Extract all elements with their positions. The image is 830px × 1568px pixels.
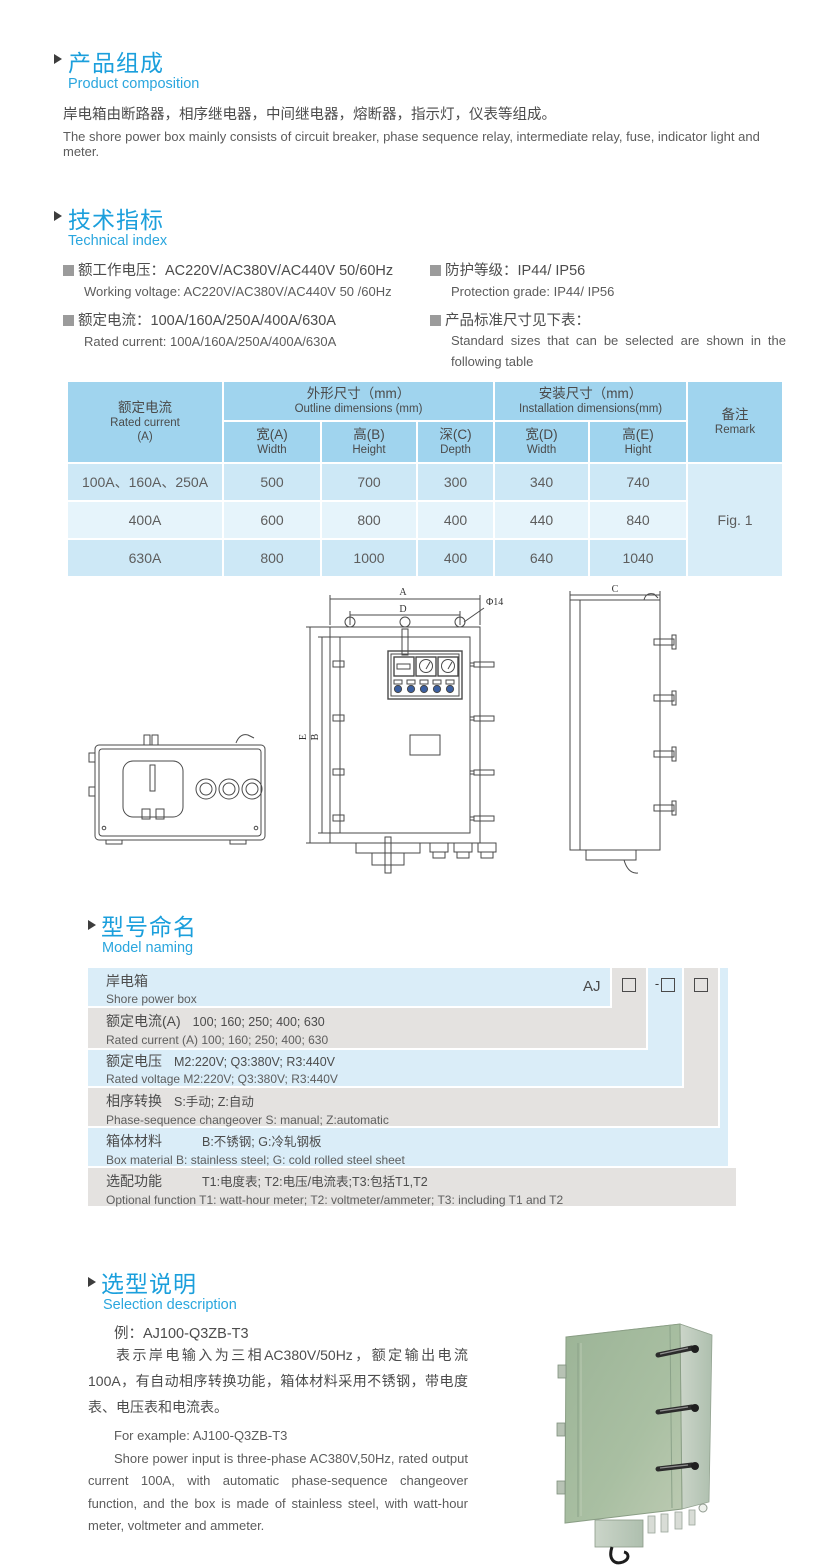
section-bullet-icon xyxy=(54,211,62,221)
side-view: C xyxy=(570,585,676,873)
naming-row-shore-power-box: 岸电箱 Shore power box AJ xyxy=(88,968,610,1006)
table-cell: 800 xyxy=(322,502,416,538)
table-cell: 400 xyxy=(418,540,493,576)
example-model-cn: 例：AJ100-Q3ZB-T3 xyxy=(114,1322,249,1343)
code-strip-voltage: - xyxy=(648,968,682,1086)
spec-rated-current-cn: 额定电流：100A/160A/250A/400A/630A xyxy=(63,309,336,330)
section-subtitle-model-naming: Model naming xyxy=(102,940,193,956)
square-bullet-icon xyxy=(63,265,74,276)
square-bullet-icon xyxy=(63,315,74,326)
code-box-icon xyxy=(694,978,708,992)
table-cell: 630A xyxy=(68,540,222,576)
table-cell: 100A、160A、250A xyxy=(68,464,222,500)
table-row: 630A 800 1000 400 640 1040 xyxy=(68,540,782,576)
section-title-product-composition: 产品组成 xyxy=(68,44,164,78)
table-cell: 840 xyxy=(590,502,686,538)
dim-b-label: B xyxy=(310,733,321,740)
naming-row-rated-voltage: 额定电压M2:220V; Q3:380V; R3:440V Rated volt… xyxy=(88,1050,682,1086)
latch-icons xyxy=(470,662,494,821)
spec-protection-grade-en: Protection grade: IP44/ IP56 xyxy=(430,284,614,299)
code-strip-current xyxy=(612,968,646,1048)
catalog-page: 产品组成 Product composition 岸电箱由断路器，相序继电器，中… xyxy=(0,0,830,1568)
section-bullet-icon xyxy=(88,1277,96,1287)
remark-cell: Fig. 1 xyxy=(688,464,782,576)
table-cell: 640 xyxy=(495,540,588,576)
table-cell: 800 xyxy=(224,540,320,576)
naming-row-rated-current: 额定电流(A)100; 160; 250; 400; 630 Rated cur… xyxy=(88,1008,646,1048)
section-title-technical-index: 技术指标 xyxy=(68,201,164,235)
naming-row-phase-sequence: 相序转换S:手动; Z:自动 Phase-sequence changeover… xyxy=(88,1088,718,1126)
square-bullet-icon xyxy=(430,265,441,276)
table-cell: 500 xyxy=(224,464,320,500)
hinge-icons xyxy=(557,1365,566,1494)
cabinet-body xyxy=(565,1324,712,1523)
table-cell: 300 xyxy=(418,464,493,500)
model-naming-diagram: 岸电箱 Shore power box AJ 额定电流(A)100; 160; … xyxy=(88,968,748,1208)
section-title-model-naming: 型号命名 xyxy=(101,908,197,942)
subheader-hight-e: 高(E)Hight xyxy=(590,422,686,462)
table-cell: 740 xyxy=(590,464,686,500)
table-cell: 400 xyxy=(418,502,493,538)
hole-diameter-label: Φ14 xyxy=(486,597,503,608)
product-photo xyxy=(540,1295,830,1568)
latch-icons xyxy=(654,635,676,815)
table-row: 400A 600 800 400 440 840 xyxy=(68,502,782,538)
section-bullet-icon xyxy=(88,920,96,930)
bottom-view xyxy=(89,735,265,844)
dim-d-label: D xyxy=(399,604,406,615)
code-separator: - xyxy=(655,978,659,990)
header-rated-current: 额定电流 Rated current (A) xyxy=(68,382,222,462)
subheader-width-a: 宽(A)Width xyxy=(224,422,320,462)
code-box-icon xyxy=(622,978,636,992)
dim-a-label: A xyxy=(399,587,407,598)
section-subtitle-product-composition: Product composition xyxy=(68,76,199,92)
table-cell: 1000 xyxy=(322,540,416,576)
example-model-en: For example: AJ100-Q3ZB-T3 xyxy=(114,1428,287,1443)
naming-row-optional-function: 选配功能T1:电度表; T2:电压/电流表;T3:包括T1,T2 Optiona… xyxy=(88,1168,736,1206)
header-installation-dimensions: 安装尺寸（mm） Installation dimensions(mm) xyxy=(495,382,686,420)
section-bullet-icon xyxy=(54,54,62,64)
spec-standard-sizes-en: Standard sizes that can be selected are … xyxy=(430,331,786,373)
table-cell: 440 xyxy=(495,502,588,538)
spec-standard-sizes-cn: 产品标准尺寸见下表： xyxy=(430,309,590,330)
technical-drawing: A D Φ14 xyxy=(88,585,728,880)
table-header-row: 额定电流 Rated current (A) 外形尺寸（mm） Outline … xyxy=(68,382,782,420)
size-table: 额定电流 Rated current (A) 外形尺寸（mm） Outline … xyxy=(66,380,784,578)
header-remark: 备注 Remark xyxy=(688,382,782,462)
header-outline-dimensions: 外形尺寸（mm） Outline dimensions (mm) xyxy=(224,382,493,420)
table-row: 100A、160A、250A 500 700 300 340 740 Fig. … xyxy=(68,464,782,500)
product-composition-text-en: The shore power box mainly consists of c… xyxy=(63,129,783,159)
code-strip-tail xyxy=(720,968,728,1166)
dim-e-label: E xyxy=(298,734,309,740)
section-title-selection-description: 选型说明 xyxy=(101,1265,197,1299)
product-composition-text-cn: 岸电箱由断路器，相序继电器，中间继电器，熔断器，指示灯，仪表等组成。 xyxy=(63,103,783,124)
front-view: A D Φ14 xyxy=(298,587,503,873)
spec-protection-grade-cn: 防护等级：IP44/ IP56 xyxy=(430,259,585,280)
selection-body-en: Shore power input is three-phase AC380V,… xyxy=(88,1448,468,1537)
dim-c-label: C xyxy=(612,585,619,595)
spec-working-voltage-cn: 额工作电压：AC220V/AC380V/AC440V 50/60Hz xyxy=(63,259,393,280)
table-cell: 400A xyxy=(68,502,222,538)
table-cell: 340 xyxy=(495,464,588,500)
selection-body-cn: 表示岸电输入为三相AC380V/50Hz，额定输出电流100A，有自动相序转换功… xyxy=(88,1343,468,1421)
subheader-height-b: 高(B)Height xyxy=(322,422,416,462)
square-bullet-icon xyxy=(430,315,441,326)
section-subtitle-selection-description: Selection description xyxy=(103,1297,237,1313)
meter-panel xyxy=(388,651,462,699)
model-code-prefix: AJ xyxy=(583,978,601,995)
spec-rated-current-en: Rated current: 100A/160A/250A/400A/630A xyxy=(63,334,336,349)
code-strip-option xyxy=(684,968,718,1126)
subheader-depth-c: 深(C)Depth xyxy=(418,422,493,462)
section-subtitle-technical-index: Technical index xyxy=(68,233,167,249)
spec-working-voltage-en: Working voltage: AC220V/AC380V/AC440V 50… xyxy=(63,284,392,299)
subheader-width-d: 宽(D)Width xyxy=(495,422,588,462)
table-cell: 600 xyxy=(224,502,320,538)
naming-row-box-material: 箱体材料B:不锈钢; G:冷轧钢板 Box material B: stainl… xyxy=(88,1128,726,1166)
code-box-icon xyxy=(661,978,675,992)
table-cell: 1040 xyxy=(590,540,686,576)
table-cell: 700 xyxy=(322,464,416,500)
